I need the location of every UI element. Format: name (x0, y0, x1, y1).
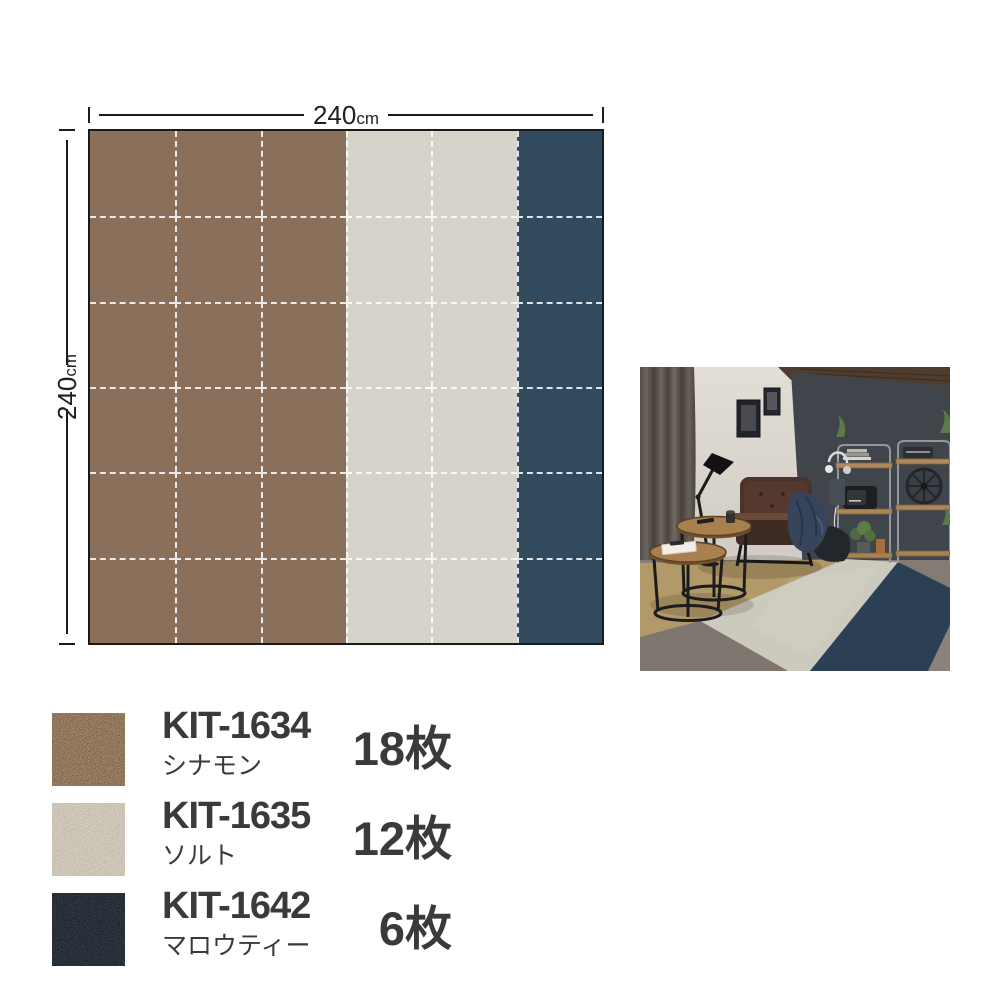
tile-cell (261, 472, 346, 557)
swatch-texture (52, 803, 125, 876)
tile-cell (431, 131, 516, 216)
tile-cell (517, 558, 602, 643)
tile-cell (261, 387, 346, 472)
tile-cell (517, 387, 602, 472)
tile-cell (431, 558, 516, 643)
legend-row-salt: KIT-1635 ソルト 12枚 (52, 803, 452, 877)
wheel-decor (907, 469, 941, 503)
tile-cell (175, 302, 260, 387)
height-dimension-label: 240cm (54, 354, 80, 420)
tile-cell (517, 131, 602, 216)
tile-cell (346, 131, 431, 216)
tile-cell (346, 558, 431, 643)
legend: KIT-1634 シナモン 18枚 KIT-1635 ソルト 12枚 KIT-1… (52, 713, 452, 973)
tile-count: 18枚 (282, 723, 452, 775)
dimension-line (66, 409, 68, 634)
swatch-mallow-tea (52, 893, 125, 966)
product-color-name: シナモン (162, 751, 262, 781)
tile-cell (175, 216, 260, 301)
tile-cell (517, 216, 602, 301)
dimension-line (66, 140, 68, 365)
tile-cell (261, 131, 346, 216)
dimension-tick (59, 129, 75, 131)
tile-cell (90, 387, 175, 472)
width-dimension-label: 240cm (313, 102, 379, 128)
tile-cell (346, 302, 431, 387)
swatch-salt (52, 803, 125, 876)
speaker (843, 486, 877, 509)
swatch-texture (52, 713, 125, 786)
tile-cell (175, 472, 260, 557)
tile-cell (431, 216, 516, 301)
tile-cell (90, 558, 175, 643)
tile-cell (517, 302, 602, 387)
room-scene-photo (640, 367, 950, 671)
product-color-name: ソルト (162, 841, 237, 871)
wood-toy (876, 539, 885, 553)
dimension-tick (88, 107, 90, 123)
dimension-line (388, 114, 593, 116)
dimension-tick (59, 643, 75, 645)
tile-count: 12枚 (282, 813, 452, 865)
tile-cell (431, 387, 516, 472)
tile-count: 6枚 (282, 903, 452, 955)
tile-layout-diagram (88, 129, 604, 645)
tile-cell (175, 131, 260, 216)
left-dimension: 240cm (54, 129, 80, 645)
dimension-tick (602, 107, 604, 123)
hanging-organizer (830, 479, 845, 505)
mug (726, 510, 735, 523)
tile-cell (346, 472, 431, 557)
radio-detail (906, 451, 930, 453)
dimension-line (99, 114, 304, 116)
tile-cell (90, 472, 175, 557)
tile-cell (175, 387, 260, 472)
tile-cell (431, 472, 516, 557)
tile-cell (261, 558, 346, 643)
tile-cell (517, 472, 602, 557)
tile-cell (90, 131, 175, 216)
tile-cell (175, 558, 260, 643)
tile-cell (431, 302, 516, 387)
tile-cell (346, 216, 431, 301)
legend-row-cinnamon: KIT-1634 シナモン 18枚 (52, 713, 452, 787)
tile-cell (261, 216, 346, 301)
top-dimension: 240cm (88, 102, 604, 128)
swatch-texture (52, 893, 125, 966)
swatch-cinnamon (52, 713, 125, 786)
tile-cell (261, 302, 346, 387)
tile-cell (90, 302, 175, 387)
legend-row-mallow-tea: KIT-1642 マロウティー 6枚 (52, 893, 452, 967)
room-scene (640, 367, 950, 671)
tile-cell (90, 216, 175, 301)
tile-cell (346, 387, 431, 472)
